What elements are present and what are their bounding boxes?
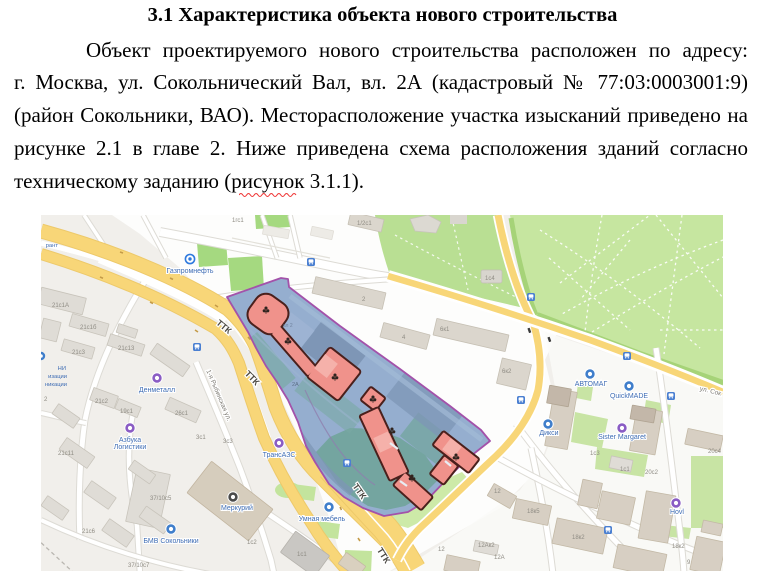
svg-text:21с3: 21с3 [72, 350, 86, 356]
svg-text:1с3: 1с3 [590, 451, 600, 457]
svg-text:3с3: 3с3 [223, 439, 233, 445]
svg-text:АВТОМАГ: АВТОМАГ [575, 381, 608, 388]
svg-text:Hovl: Hovl [670, 509, 684, 516]
svg-text:20с4: 20с4 [708, 449, 722, 455]
svg-text:3с1: 3с1 [196, 435, 206, 441]
svg-text:21с6: 21с6 [82, 529, 96, 535]
svg-text:18к2: 18к2 [672, 544, 685, 550]
svg-text:6к2: 6к2 [502, 369, 512, 375]
svg-text:Денметалл: Денметалл [139, 387, 175, 394]
svg-text:Умная мебель: Умная мебель [299, 515, 346, 523]
svg-text:Меркурий: Меркурий [221, 504, 253, 512]
svg-text:18к2: 18к2 [572, 535, 585, 541]
svg-text:26с1: 26с1 [175, 411, 189, 417]
svg-text:ТрансАЗС: ТрансАЗС [263, 452, 296, 459]
svg-text:Sister Margaret: Sister Margaret [598, 434, 646, 441]
svg-text:37/10с7: 37/10с7 [128, 563, 150, 569]
svg-text:Газпромнефть: Газпромнефть [166, 268, 213, 275]
svg-text:Азбука: Азбука [119, 436, 141, 444]
svg-text:12Ак2: 12Ак2 [478, 543, 495, 549]
svg-text:20с2: 20с2 [645, 470, 659, 476]
svg-text:12А: 12А [494, 555, 505, 561]
svg-text:12: 12 [494, 489, 501, 495]
svg-text:21с13: 21с13 [118, 346, 135, 352]
svg-text:никации: никации [45, 382, 67, 388]
svg-text:21с1б: 21с1б [80, 325, 97, 331]
svg-text:БМВ Сокольники: БМВ Сокольники [143, 538, 198, 545]
svg-text:1с1: 1с1 [620, 467, 630, 473]
svg-text:Логистики: Логистики [114, 444, 147, 451]
svg-text:19с1: 19с1 [120, 409, 134, 415]
svg-text:изации: изации [48, 374, 67, 380]
svg-text:21с11: 21с11 [58, 451, 75, 457]
svg-text:12: 12 [438, 547, 445, 553]
svg-text:1/2с1: 1/2с1 [357, 221, 372, 227]
svg-text:1с2: 1с2 [247, 540, 257, 546]
svg-text:Дикси: Дикси [539, 430, 558, 437]
svg-text:1гс1: 1гс1 [232, 218, 244, 224]
svg-text:рант: рант [46, 243, 59, 249]
svg-text:1с4: 1с4 [485, 276, 495, 282]
svg-text:НИ: НИ [58, 366, 66, 372]
svg-text:18к5: 18к5 [527, 509, 540, 515]
svg-text:6к1: 6к1 [440, 327, 450, 333]
svg-text:21с2: 21с2 [95, 399, 109, 405]
svg-text:QuickMADE: QuickMADE [610, 393, 648, 400]
svg-text:37/10с5: 37/10с5 [150, 496, 172, 502]
svg-text:1с1: 1с1 [297, 552, 307, 558]
svg-text:вл 2: вл 2 [283, 323, 293, 329]
svg-text:2А: 2А [292, 382, 299, 388]
svg-text:21с1А: 21с1А [52, 303, 69, 309]
